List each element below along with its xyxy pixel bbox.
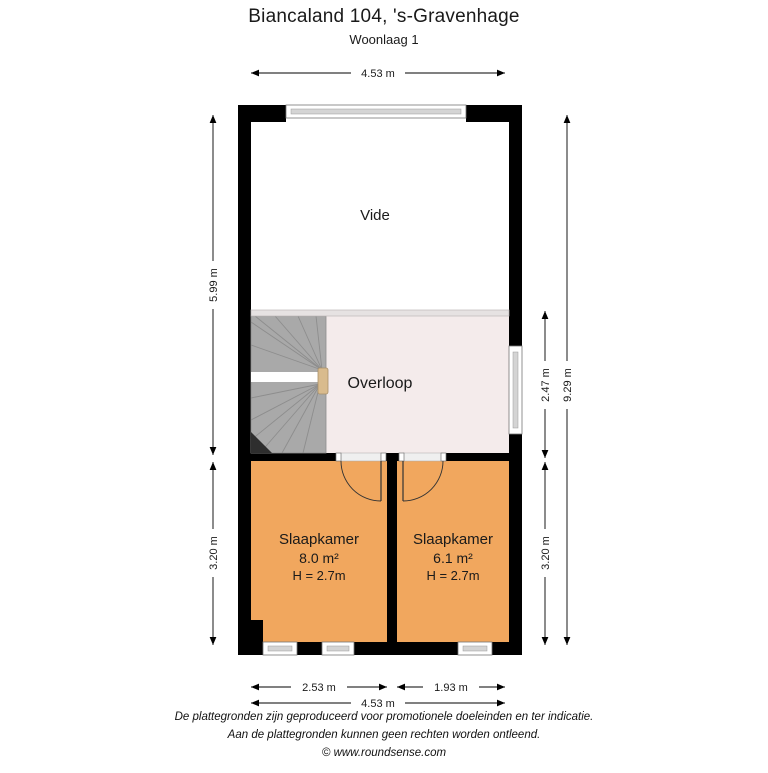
room-name: Slaapkamer <box>279 531 359 548</box>
overloop-label: Overloop <box>348 375 413 392</box>
window-top <box>286 105 466 118</box>
door-jamb <box>381 453 386 461</box>
copyright-line: © www.roundsense.com <box>0 744 768 762</box>
dimension-top-width: 4.53 m <box>251 65 505 80</box>
staircase <box>251 316 328 453</box>
window-right-overloop <box>509 346 522 434</box>
dimension-bottom-right: 1.93 m <box>397 679 505 694</box>
disclaimer-line-1: De plattegronden zijn geproduceerd voor … <box>0 708 768 726</box>
svg-text:3.20 m: 3.20 m <box>540 536 552 570</box>
vide-railing <box>251 310 509 316</box>
window-bottom-left-2 <box>322 642 354 655</box>
room-name: Slaapkamer <box>413 531 493 548</box>
door-jamb <box>399 453 404 461</box>
wall-bottom-left-step <box>238 620 263 655</box>
door-jamb <box>336 453 341 461</box>
svg-text:3.20 m: 3.20 m <box>208 536 220 570</box>
dimension-bottom-left: 2.53 m <box>251 679 387 694</box>
wall-bedroom-divider <box>387 453 397 655</box>
wall-left <box>238 105 251 655</box>
svg-text:4.53 m: 4.53 m <box>361 68 395 80</box>
room-ceiling-height: H = 2.7m <box>426 568 479 583</box>
dimension-right-total: 9.29 m <box>559 115 575 645</box>
svg-text:2.47 m: 2.47 m <box>540 368 552 402</box>
window-bottom-right <box>458 642 492 655</box>
floor-plan: Vide Overloop Slaapkamer 8.0 m² H = 2.7m… <box>0 0 768 768</box>
disclaimer: De plattegronden zijn geproduceerd voor … <box>0 708 768 762</box>
door-jamb <box>441 453 446 461</box>
dimension-right-overloop: 2.47 m <box>537 311 553 458</box>
stair-landing-gap <box>251 372 318 382</box>
dimension-left-upper: 5.99 m <box>205 115 221 455</box>
dimension-left-lower: 3.20 m <box>205 462 221 645</box>
room-area: 6.1 m² <box>433 550 473 566</box>
disclaimer-line-2: Aan de plattegronden kunnen geen rechten… <box>0 726 768 744</box>
svg-text:5.99 m: 5.99 m <box>208 268 220 302</box>
stair-handrail <box>318 368 328 394</box>
svg-text:1.93 m: 1.93 m <box>434 682 468 694</box>
room-area: 8.0 m² <box>299 550 339 566</box>
dimension-right-lower: 3.20 m <box>537 462 553 645</box>
svg-text:2.53 m: 2.53 m <box>302 682 336 694</box>
window-bottom-left-1 <box>263 642 297 655</box>
room-ceiling-height: H = 2.7m <box>292 568 345 583</box>
vide-label: Vide <box>360 207 390 224</box>
svg-text:9.29 m: 9.29 m <box>562 368 574 402</box>
